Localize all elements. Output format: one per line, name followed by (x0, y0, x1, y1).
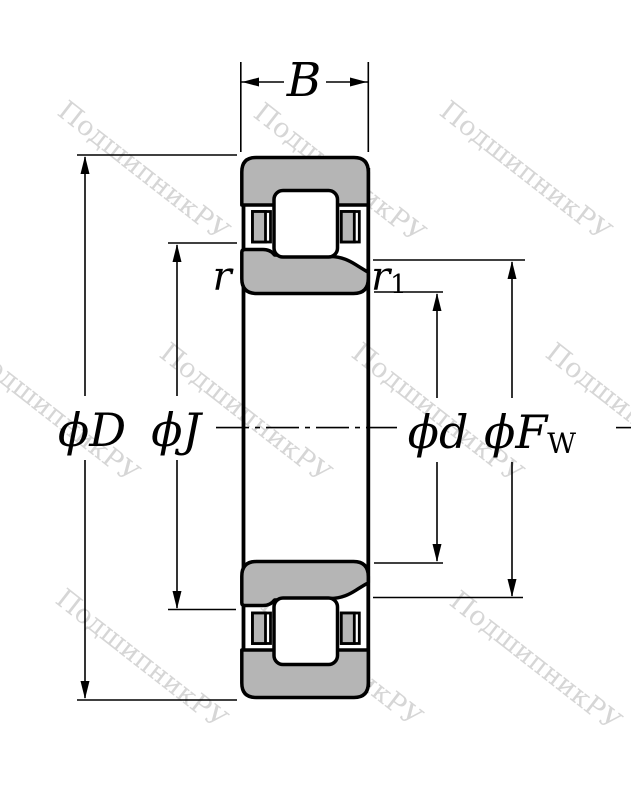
arrowhead-left (242, 78, 259, 87)
watermark-text: ПодшипникРУ (540, 337, 631, 490)
bearing-diagram: ПодшипникРУ ПодшипникРУ ПодшипникРУ Подш… (0, 0, 631, 792)
dim-label-bore-diameter: ϕd (408, 405, 469, 459)
bearing-section-bottom (242, 562, 368, 698)
bearing-drawing-page: ПодшипникРУ ПодшипникРУ ПодшипникРУ Подш… (0, 0, 631, 792)
cage-bar-left (253, 212, 266, 243)
watermark-text: ПодшипникРУ (434, 95, 617, 248)
arrowhead-down (173, 591, 182, 609)
arrowhead-down (81, 681, 90, 699)
arrowhead-down (433, 544, 442, 562)
cage-bar-right (341, 212, 354, 243)
arrowhead-down (508, 579, 517, 597)
arrowhead-up (173, 244, 182, 262)
dim-label-chamfer-outer: r (212, 254, 234, 300)
watermark-text: ПодшипникРУ (444, 585, 627, 738)
dim-label-raceway-diameter: ϕFW (484, 405, 576, 460)
raceway-label-base: ϕF (484, 405, 549, 459)
dim-label-chamfer-inner: r1 (371, 254, 407, 300)
raceway-label-subscript: W (547, 427, 576, 460)
dim-label-rib-diameter: ϕJ (151, 403, 203, 457)
chamfer-inner-subscript: 1 (390, 270, 407, 300)
watermark-text: ПодшипникРУ (50, 583, 233, 736)
watermark-text: ПодшипникРУ (52, 95, 235, 248)
roller-section (274, 191, 338, 258)
bearing-section-top (242, 158, 368, 294)
dim-label-width: B (286, 53, 322, 108)
dim-label-outer-diameter: ϕD (58, 403, 126, 457)
arrowhead-right (350, 78, 367, 87)
arrowhead-up (81, 156, 90, 174)
arrowhead-up (433, 293, 442, 311)
arrowhead-up (508, 261, 517, 279)
